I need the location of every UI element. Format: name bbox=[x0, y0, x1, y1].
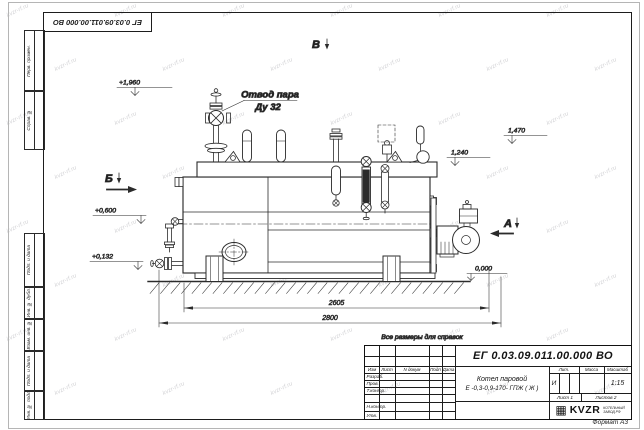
steam-outlet-valve bbox=[205, 89, 231, 162]
steam-outlet-label: Отвод пара Ду 32 bbox=[222, 90, 299, 114]
dimension-value: 2800 bbox=[321, 315, 338, 322]
elevation-value: 1,240 bbox=[451, 150, 468, 157]
top-fittings bbox=[225, 129, 402, 162]
elevation-value: +0,132 bbox=[92, 254, 113, 261]
row-utv: Утв. bbox=[365, 411, 397, 419]
view-label-b: Б bbox=[105, 173, 113, 185]
row-t-kontr: Т.контр. bbox=[365, 387, 397, 394]
th-podp: Подп bbox=[429, 366, 442, 373]
phantom-outline bbox=[378, 125, 395, 142]
sheet-count: Листов 2 bbox=[581, 393, 631, 401]
th-izm: Изм bbox=[365, 366, 379, 373]
burner-fan-scroll bbox=[453, 227, 480, 254]
th-lit: Лит. bbox=[549, 366, 579, 373]
view-label-a: А bbox=[503, 218, 512, 230]
company-logo-cell: ▦ KVZR КОТЕЛЬНЫЙ ЗАВОД РФ bbox=[549, 401, 631, 419]
th-masshtab: Масштаб bbox=[604, 366, 631, 373]
th-massa: Масса bbox=[579, 366, 604, 373]
elevation-mark: +0,132 bbox=[90, 254, 143, 270]
row-n-kontr: Н.контр. bbox=[365, 402, 397, 411]
th-data: Дата bbox=[442, 366, 455, 373]
row-razrab: Разраб. bbox=[365, 373, 397, 380]
top-header-plate bbox=[197, 162, 437, 177]
brand-tagline: КОТЕЛЬНЫЙ ЗАВОД РФ bbox=[603, 406, 624, 414]
kvzr-logo-icon: ▦ bbox=[555, 405, 566, 415]
support-leg-left bbox=[206, 256, 223, 282]
steam-outlet-label-line1: Отвод пара bbox=[241, 90, 299, 101]
view-label-v: В bbox=[312, 39, 320, 51]
elevation-mark: +1,960 bbox=[117, 80, 172, 96]
pipe-stub bbox=[277, 130, 286, 162]
row-prov: Пров. bbox=[365, 380, 397, 387]
ground-hatch bbox=[150, 283, 464, 294]
reference-note: Все размеры для справок bbox=[381, 333, 463, 341]
th-list: Лист bbox=[379, 366, 395, 373]
left-wall-fittings bbox=[151, 178, 183, 270]
elevation-value: 1,470 bbox=[508, 128, 525, 135]
product-name-line1: Котел паровой bbox=[477, 376, 527, 383]
boiler-body bbox=[178, 162, 437, 282]
elevation-mark: +0,600 bbox=[93, 208, 146, 224]
elevation-value: +0,600 bbox=[95, 208, 116, 215]
burner bbox=[431, 198, 480, 273]
th-n-dokum: N докум bbox=[395, 366, 429, 373]
burner-mount-plate bbox=[431, 198, 436, 273]
elevation-mark: 1,240 bbox=[447, 150, 490, 166]
title-block: Изм Лист N докум Подп Дата Разраб. Пров.… bbox=[364, 345, 632, 420]
doc-number: ЕГ 0.03.09.011.00.000 ВО bbox=[455, 346, 631, 366]
brand-name: KVZR bbox=[570, 404, 601, 416]
pipe-stub bbox=[243, 130, 252, 162]
sheet-number: Лист 1 bbox=[549, 393, 581, 401]
lit-value: И bbox=[549, 373, 559, 393]
elevation-value: +1,960 bbox=[119, 80, 140, 87]
support-leg-right bbox=[383, 256, 400, 282]
drawing-sheet: kvzr-rf.rukvzr-rf.rukvzr-rf.rukvzr-rf.ru… bbox=[0, 0, 644, 430]
elevation-value: 0,000 bbox=[475, 266, 492, 273]
format-label: Формат А3 bbox=[560, 419, 628, 426]
ground-line bbox=[148, 282, 470, 294]
product-name: Котел паровой Е -0,3-0,9-170- ГПЖ ( Ж ) bbox=[455, 366, 549, 401]
dimension-value: 2605 bbox=[328, 300, 345, 307]
scale-value: 1:15 bbox=[604, 373, 631, 393]
pressure-gauge-siphon bbox=[410, 126, 429, 163]
product-name-line2: Е -0,3-0,9-170- ГПЖ ( Ж ) bbox=[465, 385, 538, 392]
elevation-mark: 1,470 bbox=[504, 128, 547, 144]
brand-tagline-line2: ЗАВОД РФ bbox=[603, 410, 624, 414]
steam-outlet-label-line2: Ду 32 bbox=[254, 102, 281, 113]
